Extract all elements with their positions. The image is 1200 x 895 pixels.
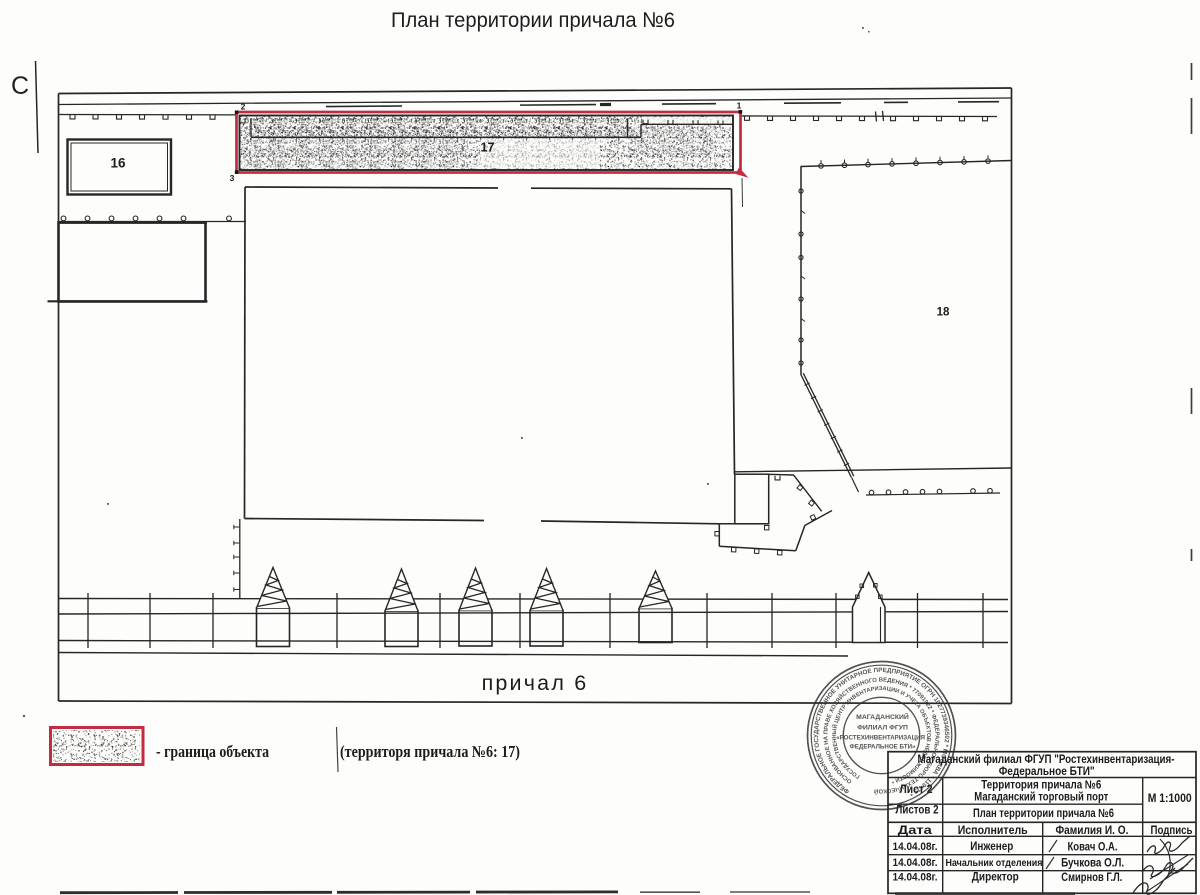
svg-text:Исполнитель: Исполнитель (958, 823, 1028, 837)
svg-text:14.04.08г.: 14.04.08г. (893, 841, 938, 853)
svg-text:16: 16 (110, 156, 126, 171)
svg-text:1: 1 (737, 101, 742, 111)
svg-text:М 1:1000: М 1:1000 (1148, 793, 1192, 805)
svg-text:МАГАДАНСКИЙ: МАГАДАНСКИЙ (856, 712, 909, 721)
svg-text:14.04.08г.: 14.04.08г. (893, 857, 938, 869)
svg-text:(территоря причала №6: 17): (территоря причала №6: 17) (340, 742, 520, 761)
svg-text:3: 3 (230, 173, 235, 183)
svg-text:14.04.08г.: 14.04.08г. (893, 872, 938, 884)
svg-text:Подпись: Подпись (1151, 823, 1193, 837)
svg-text:18: 18 (937, 307, 950, 319)
svg-text:План территории причала №6: План территории причала №6 (391, 8, 675, 32)
svg-text:17: 17 (481, 141, 495, 155)
svg-text:ФЕДЕРАЛЬНОЕ БТИ»: ФЕДЕРАЛЬНОЕ БТИ» (850, 744, 917, 751)
svg-text:Начальник отделения: Начальник отделения (946, 857, 1043, 869)
svg-text:2: 2 (241, 102, 246, 112)
svg-text:«РОСТЕХИНВЕНТАРИЗАЦИЯ -: «РОСТЕХИНВЕНТАРИЗАЦИЯ - (836, 735, 929, 742)
svg-text:Ковач О.А.: Ковач О.А. (1068, 841, 1118, 853)
svg-text:Магаданский торговый порт: Магаданский торговый порт (974, 789, 1108, 803)
svg-text:Бучкова О.Л.: Бучкова О.Л. (1061, 858, 1124, 870)
svg-text:Директор: Директор (972, 872, 1019, 884)
svg-text:Фамилия И. О.: Фамилия И. О. (1056, 823, 1129, 837)
svg-text:Смирнов Г.Л.: Смирнов Г.Л. (1061, 872, 1122, 884)
svg-text:ФИЛИАЛ ФГУП: ФИЛИАЛ ФГУП (857, 725, 908, 732)
svg-text:План территории причала №6: План территории причала №6 (973, 806, 1114, 820)
svg-text:Листов 2: Листов 2 (896, 803, 939, 817)
svg-text:Федеральное БТИ": Федеральное БТИ" (999, 764, 1095, 778)
svg-text:Инженер: Инженер (970, 841, 1013, 853)
svg-text:- граница объекта: - граница объекта (156, 742, 269, 761)
svg-text:Дата: Дата (898, 823, 933, 837)
svg-text:причал 6: причал 6 (482, 671, 589, 695)
svg-text:С: С (11, 72, 29, 100)
